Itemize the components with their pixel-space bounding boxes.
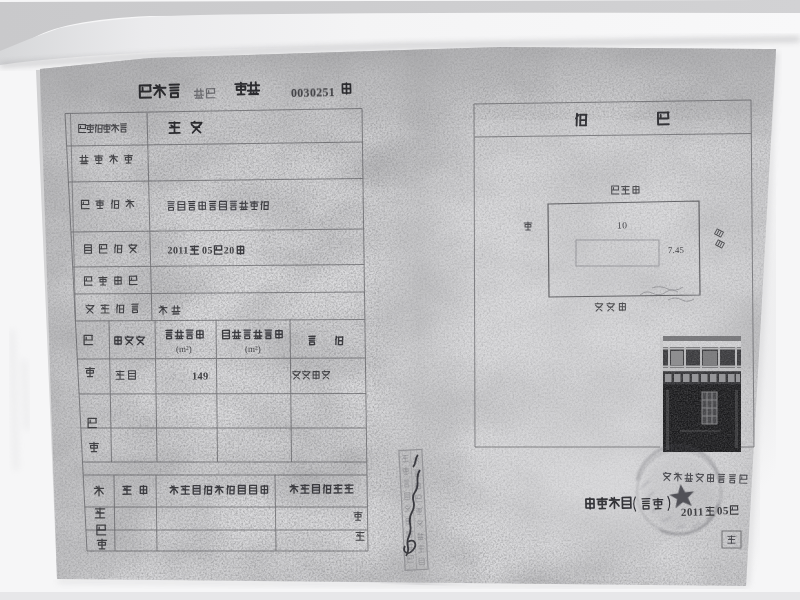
svg-text:(m²): (m²) bbox=[245, 344, 261, 354]
svg-text:0030251: 0030251 bbox=[291, 85, 335, 100]
svg-text:10: 10 bbox=[617, 220, 628, 230]
svg-text:20: 20 bbox=[224, 244, 235, 255]
svg-text:2011: 2011 bbox=[681, 505, 704, 518]
svg-text:05: 05 bbox=[202, 244, 213, 255]
svg-text:2011: 2011 bbox=[167, 244, 188, 255]
svg-text:05: 05 bbox=[717, 504, 729, 516]
svg-text:(m²): (m²) bbox=[176, 344, 192, 354]
svg-text:149: 149 bbox=[192, 370, 209, 381]
svg-text:7.45: 7.45 bbox=[668, 245, 685, 255]
